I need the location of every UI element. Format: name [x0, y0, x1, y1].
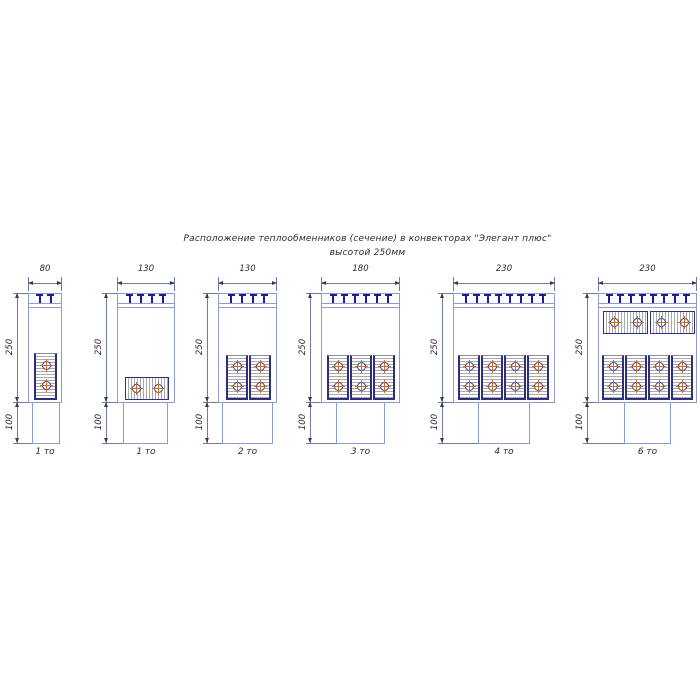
- tube-circle: [378, 360, 391, 373]
- dim-arrow-icon: [15, 293, 19, 298]
- tube-circle: [463, 380, 476, 393]
- tube-crosshair-icon: [492, 360, 493, 373]
- dim-extension-line: [583, 443, 624, 444]
- tube-circle: [631, 316, 644, 329]
- dim-label-250: 250: [194, 327, 206, 367]
- tube-circle: [231, 380, 244, 393]
- dim-line-width: [117, 283, 175, 284]
- grille-clip-icon: [263, 296, 265, 303]
- grille-clip-icon: [252, 296, 254, 303]
- dim-label-250: 250: [93, 327, 105, 367]
- tube-crosshair-icon: [136, 382, 137, 395]
- dim-label-250: 250: [574, 327, 586, 367]
- tube-circle: [254, 360, 267, 373]
- dim-label-width: 230: [628, 264, 668, 274]
- tube-crosshair-icon: [538, 380, 539, 393]
- diagram-caption: 3 то: [336, 447, 386, 457]
- dim-arrow-icon: [170, 281, 175, 285]
- tube-crosshair-icon: [237, 360, 238, 373]
- drawing-title-line1: Расположение теплообменников (сечение) в…: [35, 234, 700, 244]
- grille-clip-icon: [663, 296, 665, 303]
- tube-crosshair-icon: [260, 360, 261, 373]
- grille-clip-icon: [630, 296, 632, 303]
- tube-circle: [608, 316, 621, 329]
- dim-label-100: 100: [4, 402, 16, 442]
- grille-line: [453, 303, 555, 304]
- diagram-caption: 6 то: [623, 447, 673, 457]
- grille-clip-icon: [476, 296, 478, 303]
- tube-crosshair-icon: [613, 380, 614, 393]
- dim-label-100: 100: [93, 402, 105, 442]
- tube-crosshair-icon: [682, 360, 683, 373]
- grille-clip-icon: [498, 296, 500, 303]
- grille-clip-icon: [608, 296, 610, 303]
- diagram-caption: 2 то: [223, 447, 273, 457]
- grille-line: [321, 303, 400, 304]
- dim-label-width: 230: [484, 264, 524, 274]
- diagram-caption: 1 то: [121, 447, 171, 457]
- tube-crosshair-icon: [158, 382, 159, 395]
- grille-clip-icon: [162, 296, 164, 303]
- tube-crosshair-icon: [46, 359, 47, 372]
- tube-circle: [355, 360, 368, 373]
- convector-base: [336, 402, 385, 444]
- grille-clip-icon: [39, 296, 41, 303]
- tube-circle: [254, 380, 267, 393]
- grille-line: [117, 307, 175, 308]
- grille-line: [28, 303, 62, 304]
- grille-clip-icon: [129, 296, 131, 303]
- dim-line-width: [218, 283, 277, 284]
- tube-crosshair-icon: [469, 380, 470, 393]
- tube-circle: [630, 360, 643, 373]
- dim-line-width: [321, 283, 400, 284]
- dim-line-height: [587, 293, 588, 443]
- dim-line-height: [106, 293, 107, 443]
- dim-arrow-icon: [692, 281, 697, 285]
- grille-clip-icon: [50, 296, 52, 303]
- dim-label-width: 180: [341, 264, 381, 274]
- dim-line-width: [453, 283, 555, 284]
- grille-line: [598, 307, 697, 308]
- tube-circle: [231, 360, 244, 373]
- tube-circle: [152, 382, 165, 395]
- tube-crosshair-icon: [636, 360, 637, 373]
- tube-circle: [678, 316, 691, 329]
- grille-line: [218, 303, 277, 304]
- tube-crosshair-icon: [384, 360, 385, 373]
- grille-line: [598, 303, 697, 304]
- grille-line: [321, 307, 400, 308]
- tube-crosshair-icon: [46, 379, 47, 392]
- tube-circle: [630, 380, 643, 393]
- dim-label-width: 130: [126, 264, 166, 274]
- tube-circle: [532, 360, 545, 373]
- tube-crosshair-icon: [637, 316, 638, 329]
- dim-arrow-icon: [395, 281, 400, 285]
- dim-extension-line: [306, 443, 336, 444]
- tube-crosshair-icon: [384, 380, 385, 393]
- convector-base: [123, 402, 168, 444]
- tube-circle: [486, 380, 499, 393]
- dim-arrow-icon: [117, 281, 122, 285]
- dim-label-width: 130: [228, 264, 268, 274]
- tube-crosshair-icon: [613, 360, 614, 373]
- tube-crosshair-icon: [492, 380, 493, 393]
- dim-label-100: 100: [429, 402, 441, 442]
- dim-arrow-icon: [28, 281, 33, 285]
- dim-line-height: [310, 293, 311, 443]
- tube-crosshair-icon: [338, 380, 339, 393]
- grille-line: [28, 307, 62, 308]
- dim-label-250: 250: [297, 327, 309, 367]
- tube-circle: [355, 380, 368, 393]
- tube-circle: [607, 380, 620, 393]
- tube-circle: [463, 360, 476, 373]
- grille-line: [218, 307, 277, 308]
- tube-crosshair-icon: [659, 380, 660, 393]
- dim-line-height: [207, 293, 208, 443]
- dim-arrow-icon: [205, 293, 209, 298]
- tube-circle: [486, 360, 499, 373]
- grille-clip-icon: [674, 296, 676, 303]
- tube-circle: [653, 360, 666, 373]
- dim-line-height: [442, 293, 443, 443]
- grille-clip-icon: [465, 296, 467, 303]
- grille-clip-icon: [509, 296, 511, 303]
- dim-arrow-icon: [272, 281, 277, 285]
- grille-clip-icon: [520, 296, 522, 303]
- grille-clip-icon: [151, 296, 153, 303]
- dim-extension-line: [102, 443, 123, 444]
- convector-base: [32, 402, 60, 444]
- tube-crosshair-icon: [361, 380, 362, 393]
- tube-crosshair-icon: [260, 380, 261, 393]
- tube-circle: [40, 359, 53, 372]
- tube-crosshair-icon: [515, 360, 516, 373]
- diagram-caption: 1 то: [20, 447, 70, 457]
- dim-label-width: 80: [25, 264, 65, 274]
- tube-crosshair-icon: [538, 360, 539, 373]
- grille-clip-icon: [241, 296, 243, 303]
- diagram-caption: 4 то: [479, 447, 529, 457]
- tube-circle: [676, 380, 689, 393]
- grille-clip-icon: [140, 296, 142, 303]
- grille-clip-icon: [230, 296, 232, 303]
- dim-arrow-icon: [57, 281, 62, 285]
- dim-label-250: 250: [4, 327, 16, 367]
- grille-clip-icon: [343, 296, 345, 303]
- tube-circle: [332, 380, 345, 393]
- tube-crosshair-icon: [636, 380, 637, 393]
- dim-label-100: 100: [574, 402, 586, 442]
- tube-crosshair-icon: [684, 316, 685, 329]
- dim-extension-line: [203, 443, 222, 444]
- tube-circle: [509, 380, 522, 393]
- dim-arrow-icon: [585, 293, 589, 298]
- dim-arrow-icon: [598, 281, 603, 285]
- dim-line-width: [598, 283, 697, 284]
- grille-clip-icon: [365, 296, 367, 303]
- grille-clip-icon: [332, 296, 334, 303]
- tube-circle: [40, 379, 53, 392]
- tube-circle: [607, 360, 620, 373]
- grille-clip-icon: [685, 296, 687, 303]
- convector-base: [624, 402, 671, 444]
- tube-crosshair-icon: [661, 316, 662, 329]
- dim-label-250: 250: [429, 327, 441, 367]
- grille-clip-icon: [531, 296, 533, 303]
- dim-line-height: [17, 293, 18, 443]
- dim-arrow-icon: [453, 281, 458, 285]
- tube-circle: [509, 360, 522, 373]
- dim-label-100: 100: [297, 402, 309, 442]
- grille-clip-icon: [387, 296, 389, 303]
- convector-base: [478, 402, 530, 444]
- tube-circle: [655, 316, 668, 329]
- tube-crosshair-icon: [237, 380, 238, 393]
- tube-circle: [130, 382, 143, 395]
- grille-clip-icon: [641, 296, 643, 303]
- tube-circle: [378, 380, 391, 393]
- dim-extension-line: [438, 443, 478, 444]
- tube-crosshair-icon: [338, 360, 339, 373]
- dim-arrow-icon: [308, 293, 312, 298]
- dim-arrow-icon: [104, 293, 108, 298]
- grille-clip-icon: [619, 296, 621, 303]
- tube-circle: [532, 380, 545, 393]
- grille-clip-icon: [376, 296, 378, 303]
- convector-base: [222, 402, 273, 444]
- tube-crosshair-icon: [659, 360, 660, 373]
- tube-crosshair-icon: [515, 380, 516, 393]
- dim-arrow-icon: [218, 281, 223, 285]
- grille-line: [453, 307, 555, 308]
- dim-arrow-icon: [321, 281, 326, 285]
- dim-arrow-icon: [440, 293, 444, 298]
- drawing-title-line2: высотой 250мм: [35, 248, 700, 258]
- grille-clip-icon: [652, 296, 654, 303]
- grille-clip-icon: [542, 296, 544, 303]
- dim-label-100: 100: [194, 402, 206, 442]
- tube-crosshair-icon: [361, 360, 362, 373]
- tube-circle: [676, 360, 689, 373]
- drawing-canvas: Расположение теплообменников (сечение) в…: [0, 0, 700, 700]
- dim-extension-line: [13, 443, 32, 444]
- tube-circle: [332, 360, 345, 373]
- tube-crosshair-icon: [614, 316, 615, 329]
- tube-circle: [653, 380, 666, 393]
- tube-crosshair-icon: [469, 360, 470, 373]
- dim-arrow-icon: [550, 281, 555, 285]
- tube-crosshair-icon: [682, 380, 683, 393]
- grille-clip-icon: [354, 296, 356, 303]
- grille-clip-icon: [487, 296, 489, 303]
- grille-line: [117, 303, 175, 304]
